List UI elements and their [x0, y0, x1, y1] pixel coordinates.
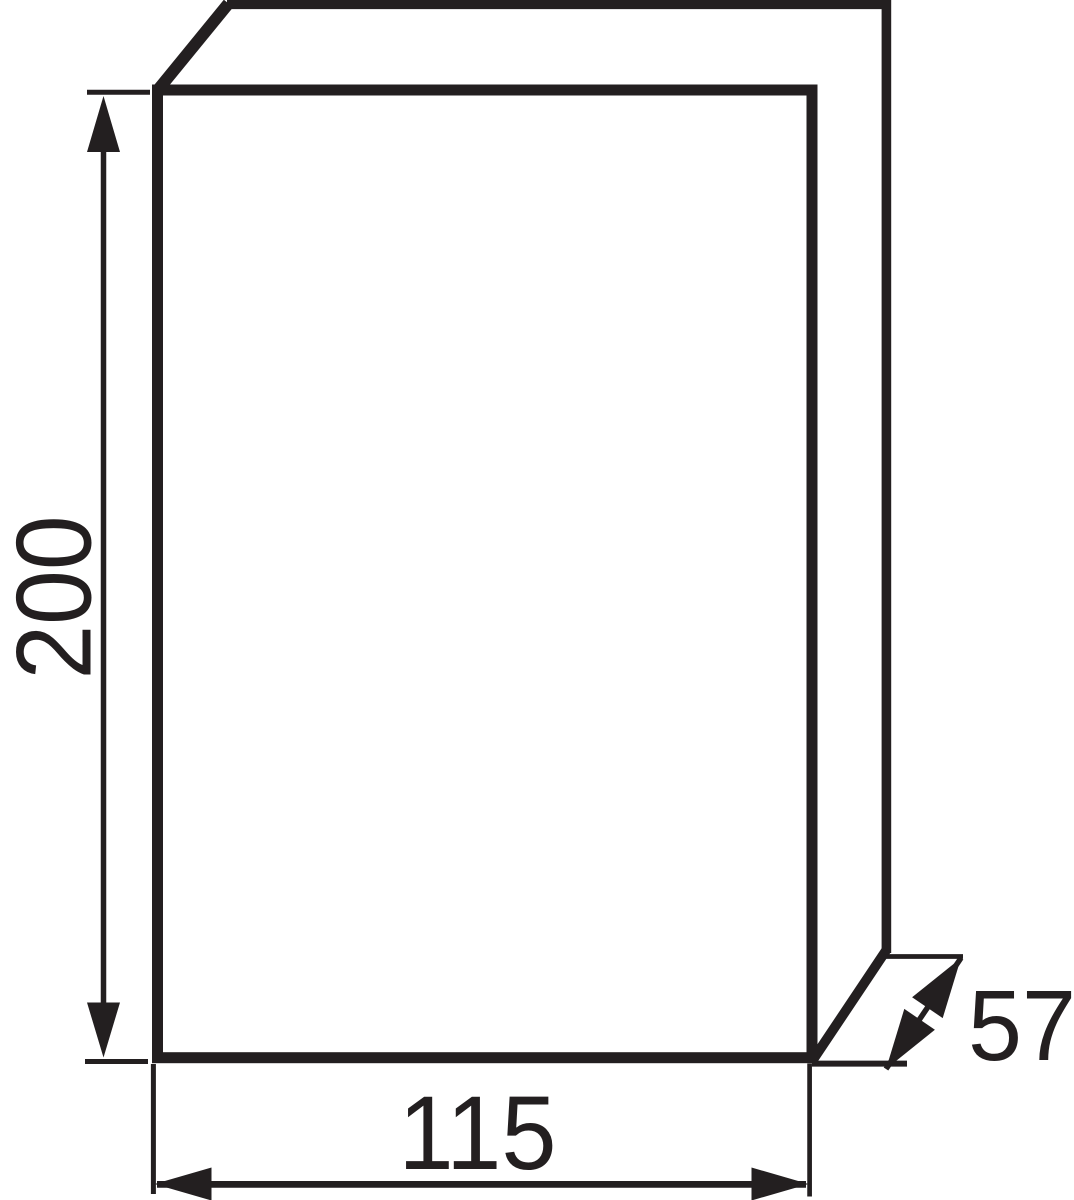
svg-text:57: 57: [968, 970, 1074, 1082]
svg-text:200: 200: [0, 516, 114, 680]
svg-text:115: 115: [399, 1075, 557, 1192]
